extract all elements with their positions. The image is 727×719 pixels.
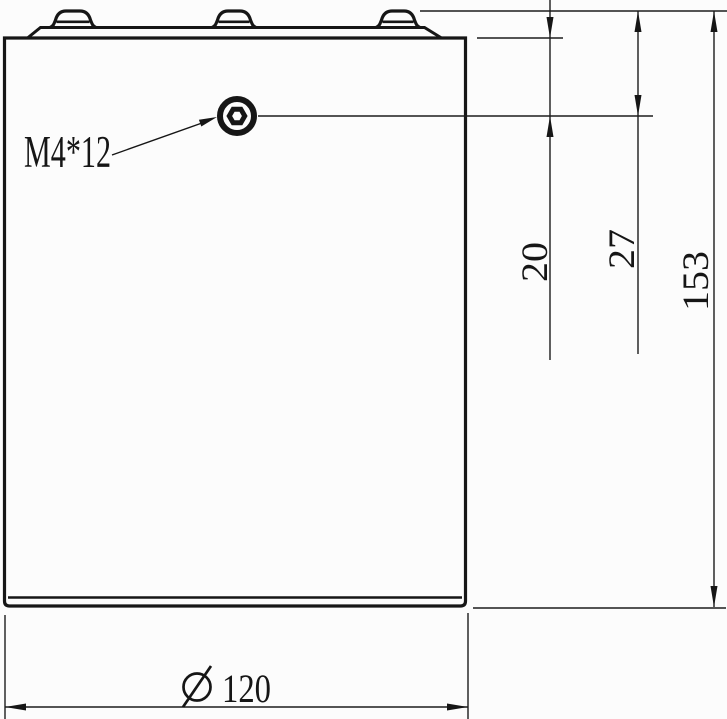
dim-20: 20 xyxy=(515,0,556,360)
screw-callout-leader xyxy=(112,123,202,155)
dim-27-arrow-bottom-icon xyxy=(635,95,642,116)
dim-20-arrow-top-icon xyxy=(547,17,554,38)
dim-153-arrow-bottom-icon xyxy=(711,586,718,607)
screw-hole-outer-ring xyxy=(220,99,254,133)
dim-20-label: 20 xyxy=(515,242,556,282)
terminal-bump-2 xyxy=(212,11,256,28)
technical-drawing: M4*12 20 27 153 xyxy=(0,0,727,719)
screw-hole-icon xyxy=(220,99,254,133)
dim-diameter-120: 120 xyxy=(5,666,468,711)
dim-diameter-arrow-left-icon xyxy=(5,704,26,711)
dim-153-label: 153 xyxy=(676,251,717,311)
dim-153-arrow-top-icon xyxy=(711,11,718,32)
terminal-bump-1 xyxy=(50,11,96,28)
dim-diameter-label: 120 xyxy=(222,666,271,711)
drawing-canvas: M4*12 20 27 153 xyxy=(0,0,727,719)
dim-153: 153 xyxy=(676,11,718,607)
screw-callout-arrow-icon xyxy=(199,117,217,127)
terminal-bump-3 xyxy=(376,11,420,28)
screw-hole-hex-socket xyxy=(226,107,247,125)
screw-callout-label: M4*12 xyxy=(24,127,111,177)
diameter-symbol-icon xyxy=(183,666,211,707)
dim-27-label: 27 xyxy=(602,229,643,269)
dim-20-arrow-bottom-icon xyxy=(547,116,554,137)
dim-diameter-arrow-right-icon xyxy=(447,704,468,711)
dim-27: 27 xyxy=(602,11,643,354)
dim-27-arrow-top-icon xyxy=(635,11,642,32)
